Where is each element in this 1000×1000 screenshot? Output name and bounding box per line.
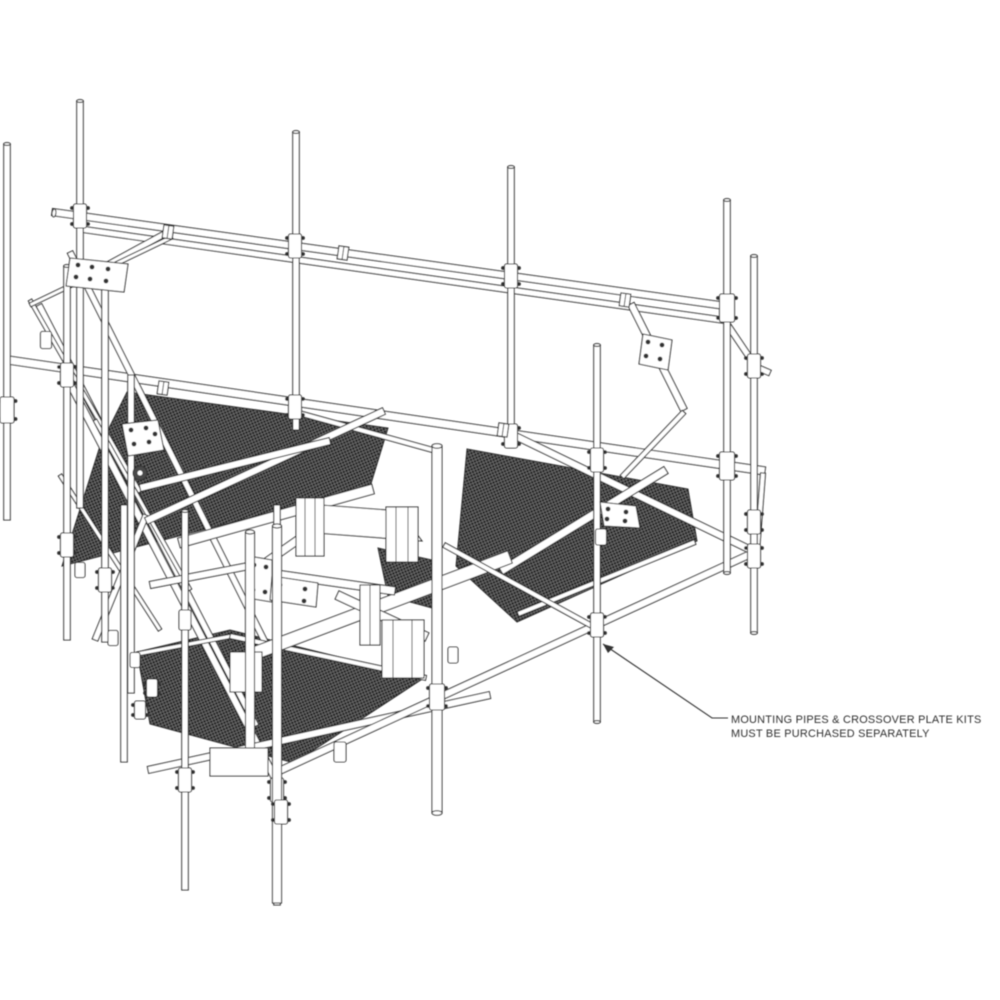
svg-text:MUST BE PURCHASED SEPARATELY: MUST BE PURCHASED SEPARATELY [731,728,930,740]
svg-text:MOUNTING PIPES & CROSSOVER PLA: MOUNTING PIPES & CROSSOVER PLATE KITS [731,714,982,726]
